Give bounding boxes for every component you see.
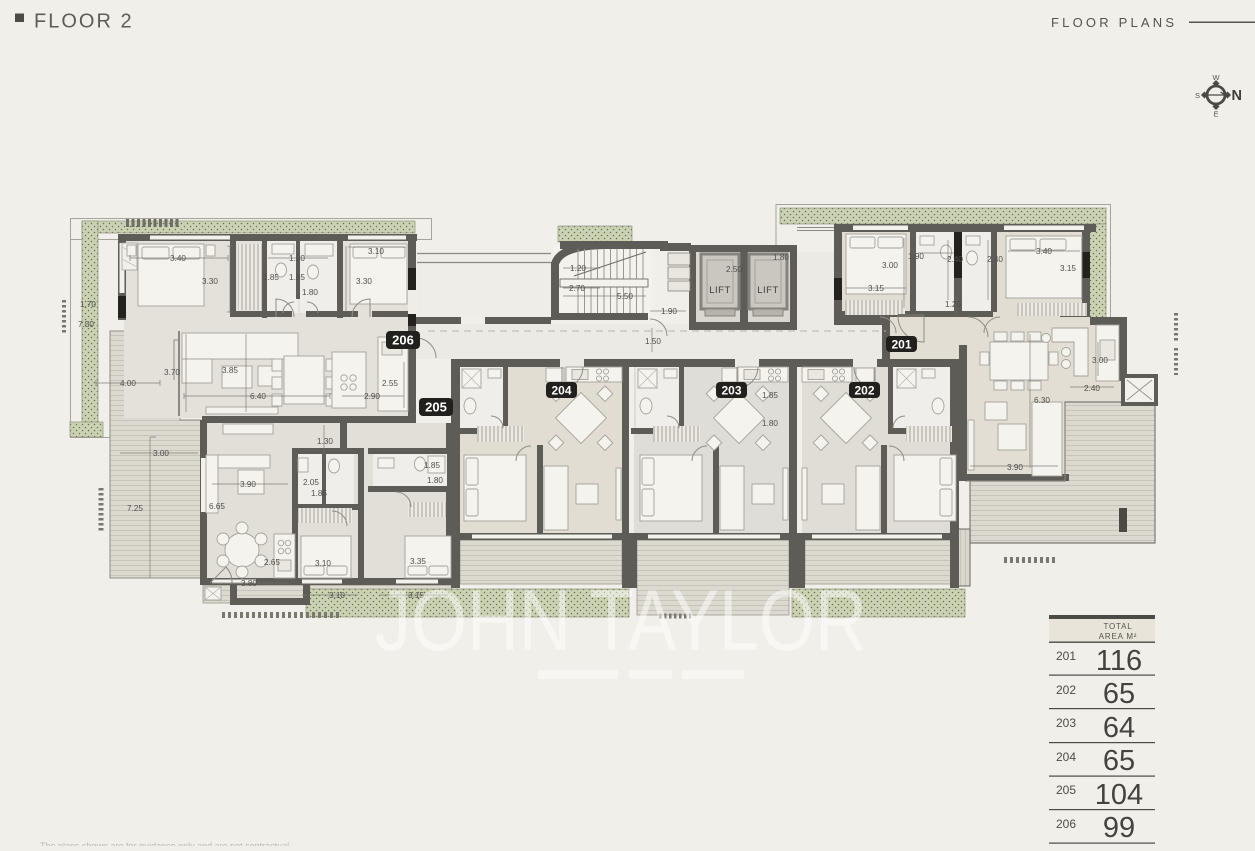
- svg-text:3.00: 3.00: [882, 261, 898, 270]
- svg-text:3.90: 3.90: [240, 480, 256, 489]
- svg-text:1.80: 1.80: [289, 254, 305, 263]
- svg-text:64: 64: [1103, 712, 1135, 744]
- svg-text:3.35: 3.35: [410, 557, 426, 566]
- svg-text:1.50: 1.50: [645, 337, 661, 346]
- svg-text:1.20: 1.20: [570, 264, 586, 273]
- svg-text:2.05: 2.05: [303, 478, 319, 487]
- svg-text:205: 205: [425, 400, 447, 415]
- svg-text:2.50: 2.50: [726, 265, 742, 274]
- svg-text:6.30: 6.30: [1034, 396, 1050, 405]
- svg-text:3.85: 3.85: [222, 366, 238, 375]
- svg-text:3.00: 3.00: [1092, 356, 1108, 365]
- svg-text:205: 205: [1056, 783, 1076, 797]
- svg-text:E: E: [1213, 110, 1218, 119]
- svg-text:1.85: 1.85: [762, 391, 778, 400]
- svg-text:203: 203: [721, 384, 741, 398]
- svg-text:W: W: [1212, 73, 1220, 82]
- svg-text:204: 204: [1056, 750, 1076, 764]
- svg-text:116: 116: [1096, 645, 1142, 677]
- svg-text:1.80: 1.80: [302, 288, 318, 297]
- svg-text:201: 201: [1056, 649, 1076, 663]
- svg-text:1.85: 1.85: [289, 273, 305, 282]
- svg-text:2.55: 2.55: [382, 379, 398, 388]
- svg-text:LIFT: LIFT: [709, 285, 731, 296]
- svg-text:3.00: 3.00: [153, 449, 169, 458]
- svg-text:1.80: 1.80: [773, 253, 789, 262]
- svg-text:4.00: 4.00: [120, 379, 136, 388]
- svg-text:206: 206: [392, 333, 414, 348]
- svg-text:1.85: 1.85: [311, 489, 327, 498]
- svg-text:201: 201: [891, 338, 911, 352]
- svg-text:202: 202: [854, 384, 874, 398]
- svg-text:6.65: 6.65: [209, 502, 225, 511]
- svg-text:3.40: 3.40: [170, 254, 186, 263]
- svg-text:3.10: 3.10: [329, 591, 345, 600]
- svg-text:1.80: 1.80: [427, 476, 443, 485]
- svg-text:1.70: 1.70: [80, 300, 96, 309]
- svg-text:3.90: 3.90: [1007, 463, 1023, 472]
- svg-text:1.30: 1.30: [317, 437, 333, 446]
- svg-text:204: 204: [551, 384, 571, 398]
- svg-text:3.10: 3.10: [368, 247, 384, 256]
- svg-text:TOTAL: TOTAL: [1103, 622, 1132, 631]
- svg-text:7.50: 7.50: [78, 320, 94, 329]
- svg-text:LIFT: LIFT: [757, 285, 779, 296]
- svg-text:2.90: 2.90: [364, 392, 380, 401]
- svg-text:2.40: 2.40: [947, 255, 963, 264]
- svg-text:FLOOR PLANS: FLOOR PLANS: [1051, 15, 1177, 30]
- svg-text:3.30: 3.30: [202, 277, 218, 286]
- svg-text:3.70: 3.70: [164, 368, 180, 377]
- svg-text:AREA M²: AREA M²: [1099, 632, 1138, 641]
- svg-text:7.25: 7.25: [127, 504, 143, 513]
- svg-text:206: 206: [1056, 817, 1076, 831]
- svg-text:The plans shown are for guidan: The plans shown are for guidance only an…: [40, 841, 289, 846]
- svg-text:FLOOR 2: FLOOR 2: [34, 11, 134, 33]
- svg-text:99: 99: [1103, 812, 1135, 844]
- svg-text:3.30: 3.30: [356, 277, 372, 286]
- svg-text:65: 65: [1103, 678, 1135, 710]
- svg-text:1.25: 1.25: [945, 300, 961, 309]
- svg-text:3.15: 3.15: [1060, 264, 1076, 273]
- svg-text:104: 104: [1095, 779, 1143, 811]
- svg-text:3.15: 3.15: [868, 284, 884, 293]
- svg-text:2.70: 2.70: [569, 284, 585, 293]
- svg-text:1.90: 1.90: [661, 307, 677, 316]
- svg-text:2.65: 2.65: [264, 558, 280, 567]
- svg-text:2.40: 2.40: [1084, 384, 1100, 393]
- svg-text:3.10: 3.10: [315, 559, 331, 568]
- svg-text:1.80: 1.80: [762, 419, 778, 428]
- svg-text:1.85: 1.85: [424, 461, 440, 470]
- svg-text:JOHN TAYLOR: JOHN TAYLOR: [375, 573, 867, 669]
- svg-text:202: 202: [1056, 683, 1076, 697]
- svg-text:N: N: [1232, 88, 1242, 104]
- svg-text:2.40: 2.40: [987, 255, 1003, 264]
- svg-text:3.80: 3.80: [241, 579, 257, 588]
- svg-text:5.50: 5.50: [617, 292, 633, 301]
- svg-text:203: 203: [1056, 716, 1076, 730]
- svg-text:3.40: 3.40: [1036, 247, 1052, 256]
- svg-text:6.40: 6.40: [250, 392, 266, 401]
- svg-text:1.85: 1.85: [263, 273, 279, 282]
- svg-text:S: S: [1195, 91, 1200, 100]
- svg-text:1.90: 1.90: [908, 252, 924, 261]
- svg-text:65: 65: [1103, 745, 1135, 777]
